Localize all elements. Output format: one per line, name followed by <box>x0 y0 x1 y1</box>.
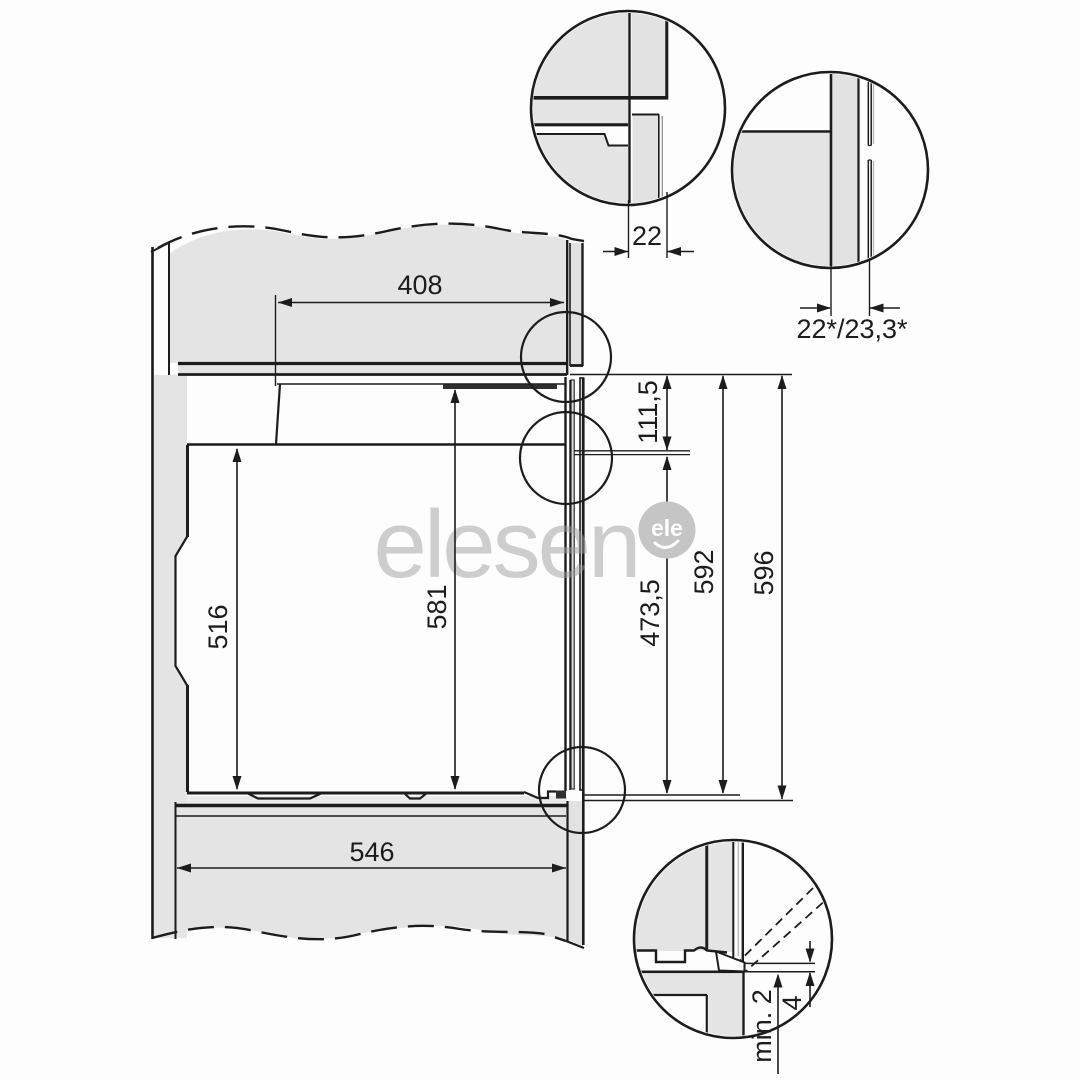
detail-circle-top-left: 22 <box>528 8 725 258</box>
dim-4-label: 4 <box>777 995 807 1010</box>
rear-notch <box>175 536 187 686</box>
dim-546-label: 546 <box>349 837 394 867</box>
watermark-logo: ele <box>639 502 696 559</box>
bottom-gap-fill <box>187 796 567 805</box>
dim-596: 596 <box>749 375 787 800</box>
dim-516: 516 <box>203 448 242 790</box>
oven-top-trim-bar <box>443 385 557 390</box>
dim-516-label: 516 <box>203 604 233 649</box>
side-wall-strip <box>155 246 169 375</box>
oven-top-slant <box>276 384 280 444</box>
dim-22-23-3: 22*/23,3* <box>796 260 908 344</box>
dim-4: 4 <box>777 941 815 1011</box>
dim-111-5-label: 111,5 <box>633 380 663 444</box>
dim-581-label: 581 <box>422 584 452 629</box>
lower-front-strip-fill <box>568 801 584 946</box>
installation-diagram-page: elesen 408 546 516 <box>0 0 1080 1080</box>
installation-diagram: elesen 408 546 516 <box>0 0 1080 1080</box>
dim-408-label: 408 <box>397 270 442 300</box>
dim-473-5-label: 473,5 <box>635 579 665 647</box>
dim-min-2: min. 2 <box>747 974 783 1075</box>
upper-front-panel-fill <box>570 243 583 366</box>
door-bottom-wedge <box>716 952 745 972</box>
dim-min-2-label: min. 2 <box>747 989 777 1063</box>
top-panel-fill <box>169 225 567 363</box>
oven-bottom-seal <box>556 791 566 799</box>
dim-596-label: 596 <box>749 550 779 595</box>
base-shelf-fill <box>154 807 567 940</box>
dim-22-label: 22 <box>632 221 662 251</box>
dim-592: 592 <box>689 375 728 794</box>
detail-circle-top-right: 22*/23,3* <box>730 70 928 344</box>
dim-111-5: 111,5 <box>633 375 672 451</box>
watermark-logo-text: ele <box>651 515 683 541</box>
dim-592-label: 592 <box>689 549 719 594</box>
top-rail-fill <box>178 365 567 373</box>
detail-circle-bottom-right: min. 2 4 <box>633 839 832 1074</box>
dim-22-23-3-label: 22*/23,3* <box>796 314 908 344</box>
watermark-text: elesen <box>374 491 639 598</box>
